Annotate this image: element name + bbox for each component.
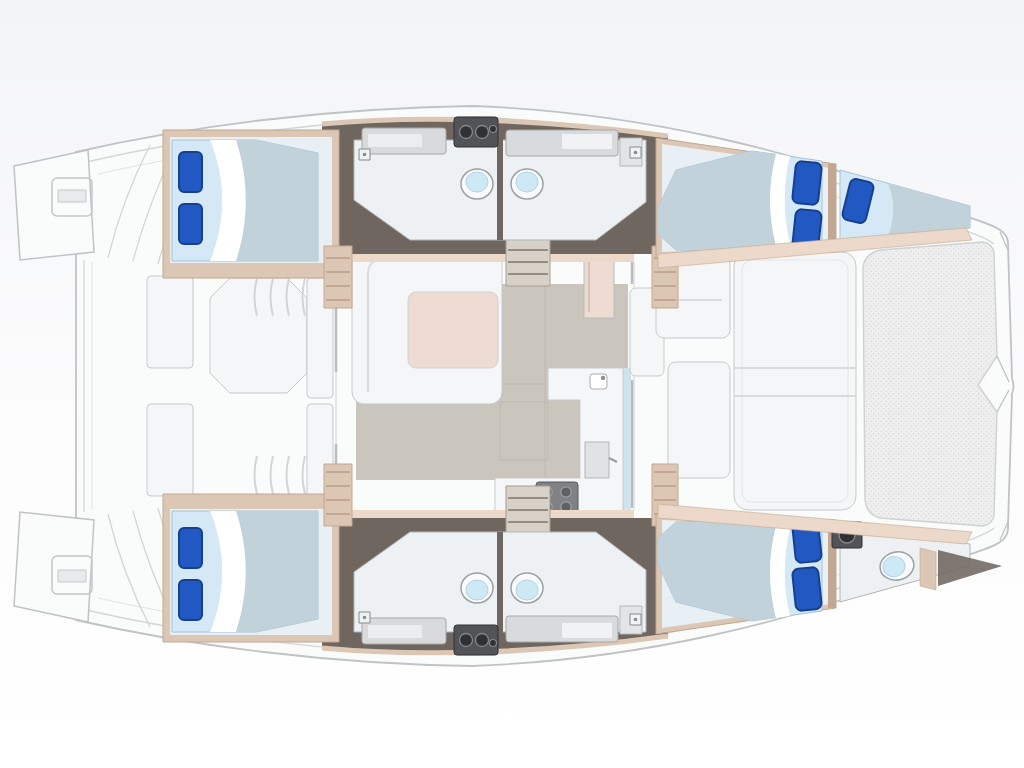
vanity: Vanity with sink bbox=[362, 128, 446, 154]
locker-door bbox=[920, 548, 936, 590]
hull-trim bbox=[352, 254, 634, 262]
swim-platform-port: Port swim platform with boarding ladder bbox=[14, 150, 94, 260]
ladder-rung bbox=[58, 190, 86, 202]
pillow bbox=[792, 161, 822, 205]
utility-unit: Utility / washer unit bbox=[454, 117, 498, 147]
galley-oven: Oven / refrigerator unit bbox=[585, 442, 609, 478]
swim-platform-starboard: Starboard swim platform with boarding la… bbox=[14, 512, 94, 622]
knob-icon bbox=[476, 126, 489, 139]
knob-icon bbox=[460, 126, 473, 139]
companionway: Companionway steps down to hull bbox=[324, 246, 352, 308]
knob-icon bbox=[490, 126, 497, 133]
burner-icon bbox=[561, 487, 571, 497]
galley-sink: Galley sink bbox=[590, 374, 607, 389]
floor-plan-svg: Catamaran yacht deck and accommodation f… bbox=[0, 0, 1024, 768]
vanity: Vanity with sink bbox=[506, 130, 618, 156]
fixture-dot bbox=[634, 151, 638, 155]
pillow bbox=[792, 567, 822, 611]
forward-bench bbox=[668, 362, 730, 478]
toilet: Marine toilet bbox=[511, 169, 543, 199]
toilet: Marine toilet bbox=[461, 169, 493, 199]
double-bed: Double berth with two pillows bbox=[172, 140, 318, 261]
ladder-rung bbox=[58, 570, 86, 582]
cockpit-bench bbox=[147, 276, 193, 368]
cockpit-bench bbox=[147, 404, 193, 496]
sink-basin bbox=[368, 134, 422, 147]
faucet-icon bbox=[601, 376, 605, 380]
hull-window-strip bbox=[623, 368, 631, 516]
cockpit-table: Cockpit dining table bbox=[210, 278, 307, 393]
sink-basin bbox=[562, 134, 612, 149]
pillow bbox=[179, 204, 202, 244]
salon-table: Salon table bbox=[408, 292, 498, 368]
bulkhead bbox=[828, 164, 836, 248]
screenshot: Catamaran yacht deck and accommodation f… bbox=[0, 0, 1024, 768]
pillow bbox=[179, 152, 202, 192]
trampoline: Bow trampoline bbox=[863, 242, 997, 526]
aft-cabin: Aft double cabin Double berth with two p… bbox=[163, 130, 339, 278]
fixture-dot bbox=[363, 153, 367, 157]
forward-lounge: Forward sun lounge bbox=[734, 252, 856, 510]
dividing-wall bbox=[497, 138, 503, 240]
